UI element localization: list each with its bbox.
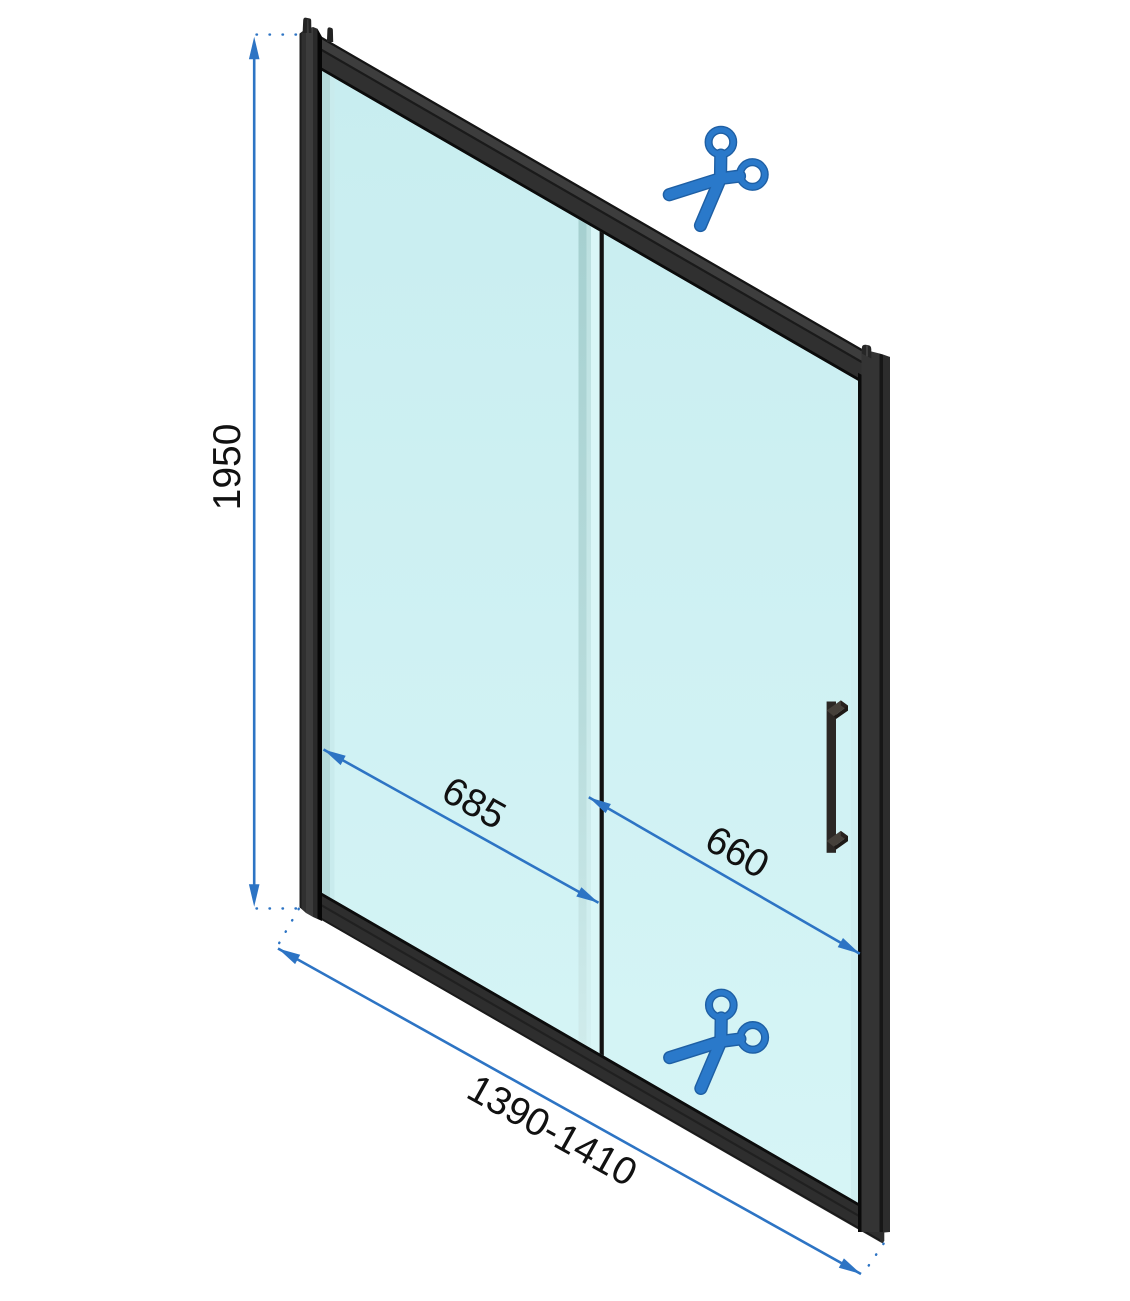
svg-text:1950: 1950 [206,424,249,511]
